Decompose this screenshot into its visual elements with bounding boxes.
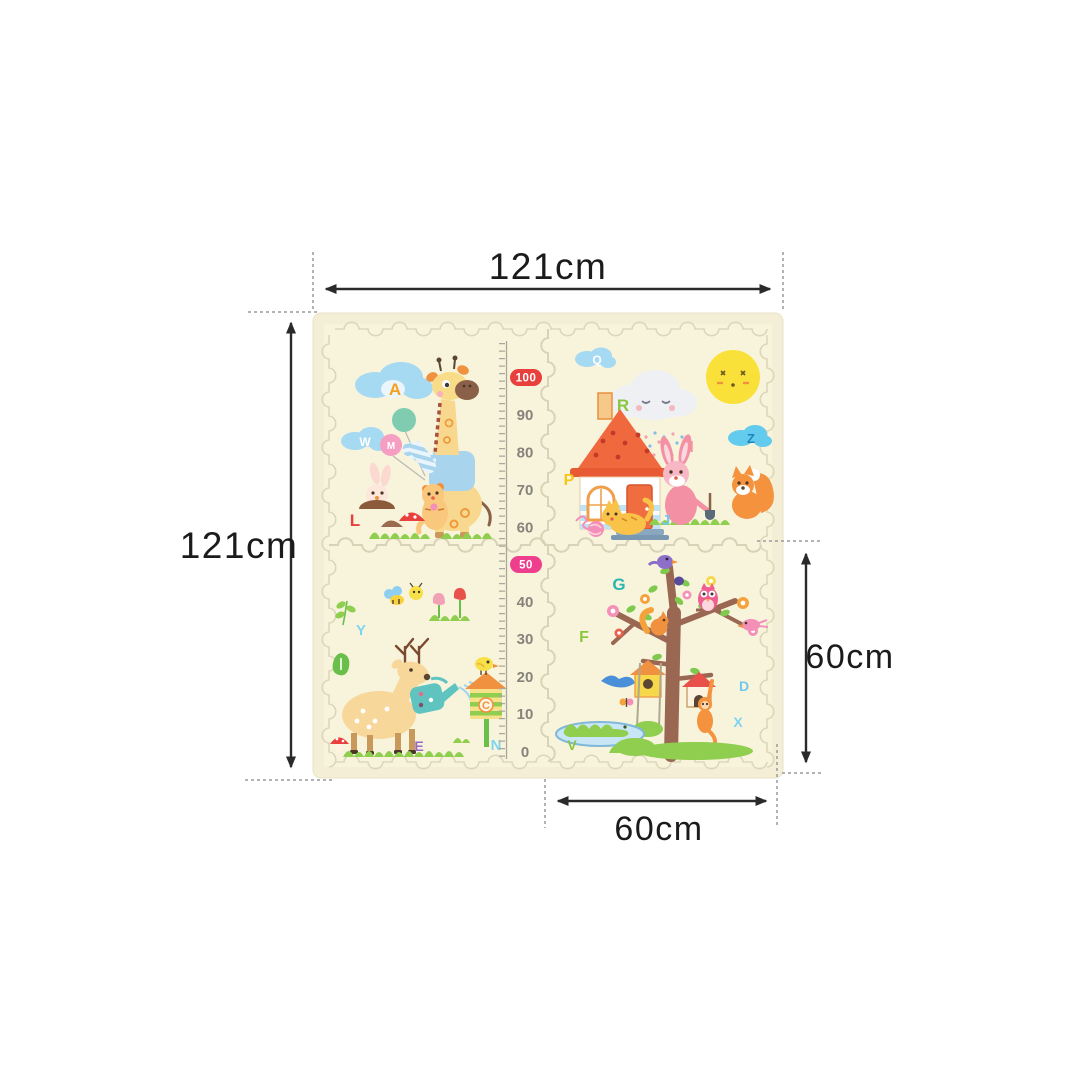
diagram-canvas: A W M xyxy=(0,0,1080,1080)
giraffe-muzzle xyxy=(455,380,479,400)
letter-v: V xyxy=(567,737,577,753)
play-mat-illustration: A W M xyxy=(313,313,783,778)
width-dimension-label: 121cm xyxy=(489,246,608,287)
cat-head xyxy=(602,506,622,526)
tile-width-dimension-label: 60cm xyxy=(614,810,703,848)
letter-z: Z xyxy=(747,431,755,446)
small-bird xyxy=(674,577,684,586)
ruler-tick-60: 60 xyxy=(517,520,534,537)
green-balloon xyxy=(392,408,416,432)
letter-d: D xyxy=(739,678,749,694)
ruler-tick-0: 0 xyxy=(521,744,529,761)
chimney xyxy=(598,393,612,419)
letter-x: X xyxy=(733,714,743,730)
ruler-tick-70: 70 xyxy=(517,482,534,499)
letter-f: F xyxy=(579,629,589,646)
sun-illustration xyxy=(706,350,760,404)
ruler-tick-80: 80 xyxy=(517,445,534,462)
letter-e: E xyxy=(414,738,423,754)
ruler-tick-10: 10 xyxy=(517,706,534,723)
tile-height-dimension-label: 60cm xyxy=(805,638,894,676)
letter-c: C xyxy=(482,700,490,712)
ruler-tick-30: 30 xyxy=(517,631,534,648)
ruler-tick-90: 90 xyxy=(517,407,534,424)
letter-q: Q xyxy=(592,353,601,367)
ruler-tick-40: 40 xyxy=(517,594,534,611)
letter-j: J xyxy=(662,512,670,529)
deer-nose xyxy=(424,674,430,680)
letter-n: N xyxy=(491,737,502,754)
shovel xyxy=(705,510,715,520)
step xyxy=(611,535,669,540)
letter-y: Y xyxy=(356,622,366,639)
ruler-badge-50-label: 50 xyxy=(519,560,533,572)
deer-body xyxy=(342,691,416,739)
ruler-tick-20: 20 xyxy=(517,669,534,686)
letter-m: M xyxy=(387,441,395,452)
letter-p: P xyxy=(564,472,575,489)
ruler-badge-100-label: 100 xyxy=(516,373,537,385)
letter-l: L xyxy=(350,511,360,530)
product-dimension-diagram: A W M xyxy=(0,0,1080,1080)
yellow-bug xyxy=(409,586,423,600)
height-dimension-label: 121cm xyxy=(180,525,299,566)
letter-w: W xyxy=(359,435,371,449)
letter-g: G xyxy=(612,575,625,594)
trunk xyxy=(671,613,674,755)
pole xyxy=(484,719,489,747)
letter-a: A xyxy=(389,380,401,399)
